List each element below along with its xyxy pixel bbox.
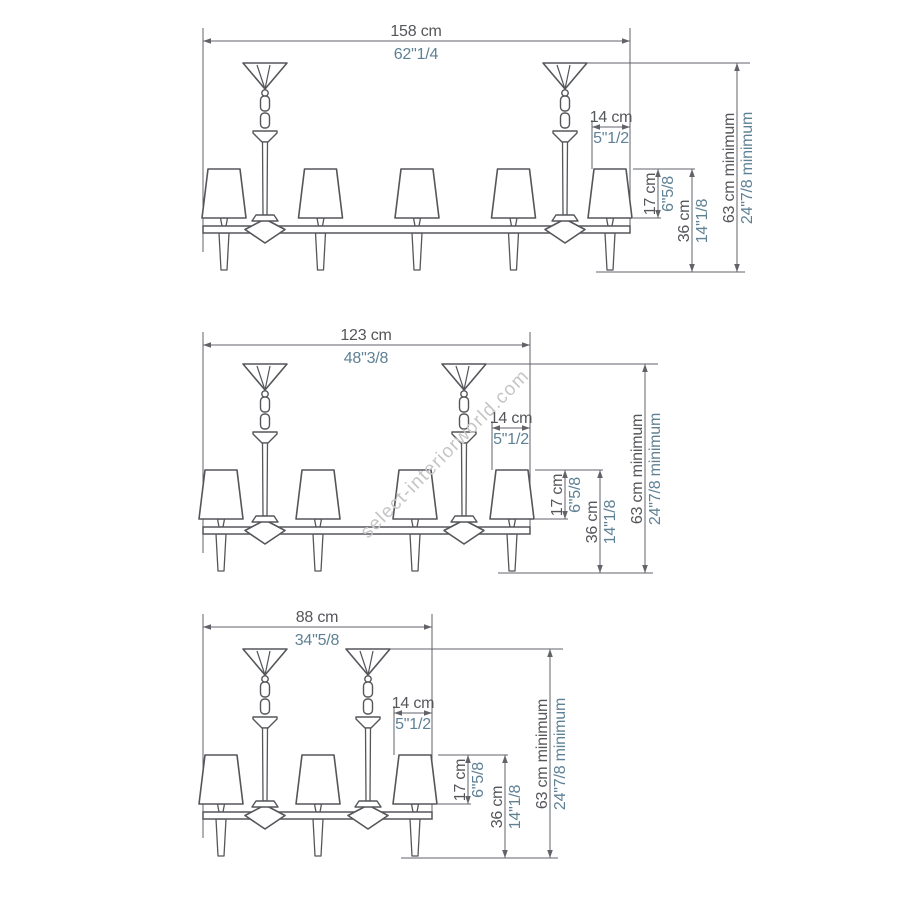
suspension-rod bbox=[263, 728, 268, 801]
body-height-label-cm: 36 cm bbox=[584, 501, 601, 544]
width-label-cm: 123 cm bbox=[340, 327, 391, 344]
hook bbox=[262, 391, 268, 397]
rod-collar bbox=[252, 215, 278, 221]
diagram-5-light: 158 cm 62"1/4 14 cm 5"1/2 17 cm 6"5/8 36… bbox=[202, 23, 756, 272]
finial bbox=[507, 534, 517, 571]
lamp-shade bbox=[202, 169, 246, 218]
lamp-shade bbox=[395, 169, 439, 218]
lamp-socket bbox=[509, 519, 516, 527]
chandelier-drawing bbox=[202, 28, 750, 272]
dimension-arrow bbox=[734, 63, 740, 71]
offset-label-cm: 14 cm bbox=[590, 109, 633, 126]
hook bbox=[365, 676, 371, 682]
hook bbox=[262, 676, 268, 682]
lamp-socket bbox=[218, 519, 225, 527]
width-label-cm: 88 cm bbox=[296, 609, 339, 626]
diamond-joint bbox=[444, 520, 484, 544]
canopy bbox=[243, 63, 287, 89]
lamp-shade bbox=[296, 755, 340, 804]
shade-height-label-cm: 17 cm bbox=[452, 759, 469, 802]
dimension-arrow bbox=[424, 624, 432, 630]
lamp-socket bbox=[221, 218, 228, 226]
chain-link bbox=[261, 397, 270, 412]
dimension-arrow bbox=[734, 264, 740, 272]
lamp-socket bbox=[607, 218, 614, 226]
dimension-arrow bbox=[522, 342, 530, 348]
dimension-arrow bbox=[642, 364, 648, 372]
chain-link bbox=[261, 113, 270, 128]
chain-link bbox=[561, 96, 570, 111]
diamond-joint bbox=[245, 520, 285, 544]
rod-collar bbox=[451, 516, 477, 522]
shade-height-label-cm: 17 cm bbox=[642, 173, 659, 216]
body-height-label-cm: 36 cm bbox=[676, 200, 693, 243]
body-height-label-cm: 36 cm bbox=[489, 786, 506, 829]
shade-height-label-cm: 17 cm bbox=[549, 474, 566, 517]
cap bbox=[253, 432, 277, 443]
dimension-arrow bbox=[547, 850, 553, 858]
chain-link bbox=[364, 699, 373, 714]
suspension-rod bbox=[263, 443, 268, 516]
suspension-rod bbox=[462, 443, 467, 516]
canopy bbox=[243, 649, 287, 675]
lamp-shade bbox=[393, 755, 437, 804]
dimension-arrow bbox=[689, 169, 695, 177]
body-height-label-in: 14"1/8 bbox=[694, 198, 711, 243]
chain-link bbox=[261, 414, 270, 429]
dimension-arrow bbox=[502, 755, 508, 763]
width-label-cm: 158 cm bbox=[390, 23, 441, 40]
dimension-arrow bbox=[689, 264, 695, 272]
min-height-label-cm: 63 cm minimum bbox=[721, 113, 738, 223]
finial bbox=[410, 534, 420, 571]
lamp-socket bbox=[315, 519, 322, 527]
hook bbox=[262, 90, 268, 96]
lamp-socket bbox=[315, 804, 322, 812]
min-height-label-cm: 63 cm minimum bbox=[534, 699, 551, 809]
finial bbox=[410, 819, 420, 856]
finial bbox=[216, 819, 226, 856]
body-height-label-in: 14"1/8 bbox=[507, 784, 524, 829]
chain-link bbox=[261, 96, 270, 111]
lamp-socket bbox=[510, 218, 517, 226]
finial bbox=[216, 534, 226, 571]
lamp-socket bbox=[414, 218, 421, 226]
min-height-label-in: 24"7/8 minimum bbox=[739, 112, 756, 224]
lamp-socket bbox=[412, 804, 419, 812]
canopy bbox=[442, 364, 486, 390]
suspension-rod bbox=[366, 728, 371, 801]
min-height-label-cm: 63 cm minimum bbox=[629, 414, 646, 524]
finial bbox=[219, 233, 229, 270]
min-height-label-in: 24"7/8 minimum bbox=[552, 698, 569, 810]
offset-label-in: 5"1/2 bbox=[593, 130, 629, 147]
chain-link bbox=[561, 113, 570, 128]
dimension-arrow bbox=[203, 342, 211, 348]
diamond-joint bbox=[348, 805, 388, 829]
finial bbox=[412, 233, 422, 270]
dimension-arrow bbox=[203, 624, 211, 630]
rod-collar bbox=[252, 801, 278, 807]
finial bbox=[313, 534, 323, 571]
dimension-arrow bbox=[642, 565, 648, 573]
hook bbox=[562, 90, 568, 96]
cap bbox=[253, 717, 277, 728]
dimension-arrow bbox=[203, 38, 211, 44]
diamond-joint bbox=[245, 805, 285, 829]
chandelier-spec-sheet: 158 cm 62"1/4 14 cm 5"1/2 17 cm 6"5/8 36… bbox=[0, 0, 900, 900]
cap bbox=[253, 131, 277, 142]
chain-link bbox=[460, 397, 469, 412]
cap bbox=[356, 717, 380, 728]
dimension-arrow bbox=[597, 470, 603, 478]
width-label-in: 34"5/8 bbox=[295, 632, 340, 649]
offset-label-cm: 14 cm bbox=[392, 695, 435, 712]
rod-collar bbox=[252, 516, 278, 522]
lamp-shade bbox=[199, 755, 243, 804]
canopy bbox=[543, 63, 587, 89]
lamp-shade bbox=[588, 169, 632, 218]
dimension-diagrams: 158 cm 62"1/4 14 cm 5"1/2 17 cm 6"5/8 36… bbox=[0, 0, 900, 900]
dimension-arrow bbox=[597, 565, 603, 573]
chain-link bbox=[364, 682, 373, 697]
canopy bbox=[346, 649, 390, 675]
width-label-in: 62"1/4 bbox=[394, 46, 439, 63]
shade-height-label-in: 6"5/8 bbox=[660, 176, 677, 212]
min-height-label-in: 24"7/8 minimum bbox=[647, 413, 664, 525]
body-height-label-in: 14"1/8 bbox=[602, 499, 619, 544]
finial bbox=[313, 819, 323, 856]
lamp-socket bbox=[317, 218, 324, 226]
dimension-arrow bbox=[547, 649, 553, 657]
lamp-shade bbox=[199, 470, 243, 519]
diagram-4-light: 123 cm 48"3/8 14 cm 5"1/2 17 cm 6"5/8 36… bbox=[199, 327, 664, 573]
finial bbox=[605, 233, 615, 270]
rod-collar bbox=[355, 801, 381, 807]
finial bbox=[509, 233, 519, 270]
dimension-arrow bbox=[502, 850, 508, 858]
support-bar bbox=[203, 812, 432, 819]
offset-label-in: 5"1/2 bbox=[493, 431, 529, 448]
lamp-socket bbox=[218, 804, 225, 812]
diagram-3-light: 88 cm 34"5/8 14 cm 5"1/2 17 cm 6"5/8 36 … bbox=[199, 609, 569, 858]
dimension-arrow bbox=[622, 38, 630, 44]
chain-link bbox=[261, 699, 270, 714]
cap bbox=[553, 131, 577, 142]
diamond-joint bbox=[245, 219, 285, 243]
lamp-shade bbox=[299, 169, 343, 218]
finial bbox=[316, 233, 326, 270]
lamp-shade bbox=[296, 470, 340, 519]
shade-height-label-in: 6"5/8 bbox=[567, 477, 584, 513]
hook bbox=[461, 391, 467, 397]
width-label-in: 48"3/8 bbox=[344, 350, 389, 367]
lamp-socket bbox=[412, 519, 419, 527]
chain-link bbox=[261, 682, 270, 697]
canopy bbox=[243, 364, 287, 390]
suspension-rod bbox=[563, 142, 568, 215]
shade-height-label-in: 6"5/8 bbox=[470, 762, 487, 798]
rod-collar bbox=[552, 215, 578, 221]
suspension-rod bbox=[263, 142, 268, 215]
lamp-shade bbox=[492, 169, 536, 218]
offset-label-in: 5"1/2 bbox=[395, 716, 431, 733]
diamond-joint bbox=[545, 219, 585, 243]
lamp-shade bbox=[490, 470, 534, 519]
